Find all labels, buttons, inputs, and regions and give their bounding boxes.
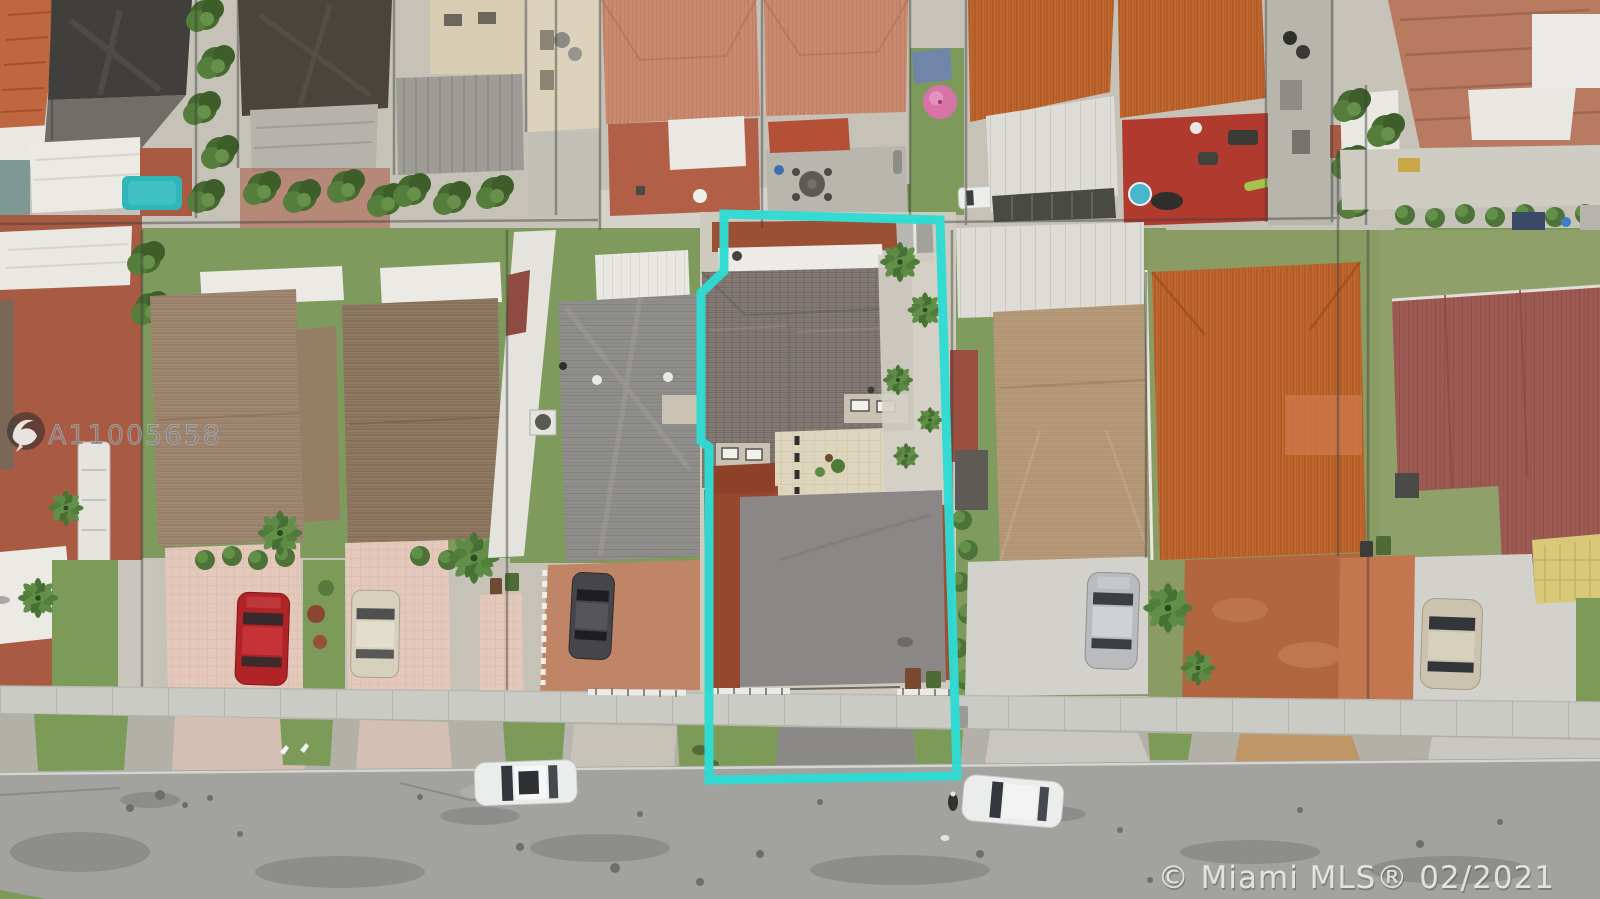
tan-house-lot bbox=[948, 222, 1166, 696]
brown-trash-bin bbox=[905, 668, 921, 690]
terracotta-driveway bbox=[540, 560, 700, 692]
garden-statue bbox=[893, 150, 902, 174]
white-canopy bbox=[668, 116, 746, 170]
silver-car bbox=[1085, 572, 1140, 670]
blue-tarp bbox=[912, 48, 952, 84]
white-car-street-left bbox=[474, 759, 577, 806]
brown-bin bbox=[490, 578, 502, 595]
dark-shed bbox=[955, 450, 988, 510]
gray-flat-roof bbox=[250, 104, 378, 172]
cream-wall-strip bbox=[525, 0, 600, 132]
white-metal-roof bbox=[956, 222, 1144, 318]
tiled-patio bbox=[775, 428, 886, 497]
copyright-text: © Miami MLS® 02/2021 bbox=[1158, 860, 1555, 896]
metal-roof bbox=[396, 74, 524, 175]
tan-car bbox=[1420, 598, 1483, 690]
white-trailer bbox=[78, 442, 110, 577]
maroon-roof-house bbox=[1392, 286, 1600, 492]
orange-awning bbox=[768, 118, 850, 153]
left-lot bbox=[0, 215, 152, 695]
black-sofa bbox=[1151, 192, 1183, 210]
beige-car bbox=[350, 590, 400, 678]
copyright-watermark: © Miami MLS® 02/2021 © Miami MLS® 02/202… bbox=[1158, 860, 1556, 898]
orange-dirt-patch bbox=[1338, 555, 1415, 710]
salmon-tile-roof-2 bbox=[764, 0, 908, 116]
maroon-strip bbox=[950, 350, 978, 462]
orange-tile-roof-b bbox=[1118, 0, 1266, 118]
tan-shingle-roof-house bbox=[993, 304, 1150, 562]
white-car-street-right bbox=[961, 774, 1065, 829]
salmon-tile-roof-1 bbox=[602, 0, 760, 124]
dark-gray-car bbox=[568, 572, 614, 660]
small-dog bbox=[941, 835, 950, 841]
aerial-photo-canvas: A11005658 © Miami MLS® 02/2021 © Miami M… bbox=[0, 0, 1600, 899]
brown-roof-house-1 bbox=[150, 289, 304, 547]
gray-house-lot bbox=[480, 228, 702, 694]
gray-shingle-roof-house bbox=[558, 294, 700, 562]
white-awning-roof bbox=[0, 226, 132, 290]
aerial-photo: A11005658 © Miami MLS® 02/2021 © Miami M… bbox=[0, 0, 1600, 899]
cream-building bbox=[430, 0, 524, 74]
green-trash-bin bbox=[926, 671, 941, 688]
red-car bbox=[235, 592, 290, 686]
mls-number-watermark: A11005658 bbox=[48, 420, 222, 451]
ac-unit bbox=[1395, 473, 1419, 498]
